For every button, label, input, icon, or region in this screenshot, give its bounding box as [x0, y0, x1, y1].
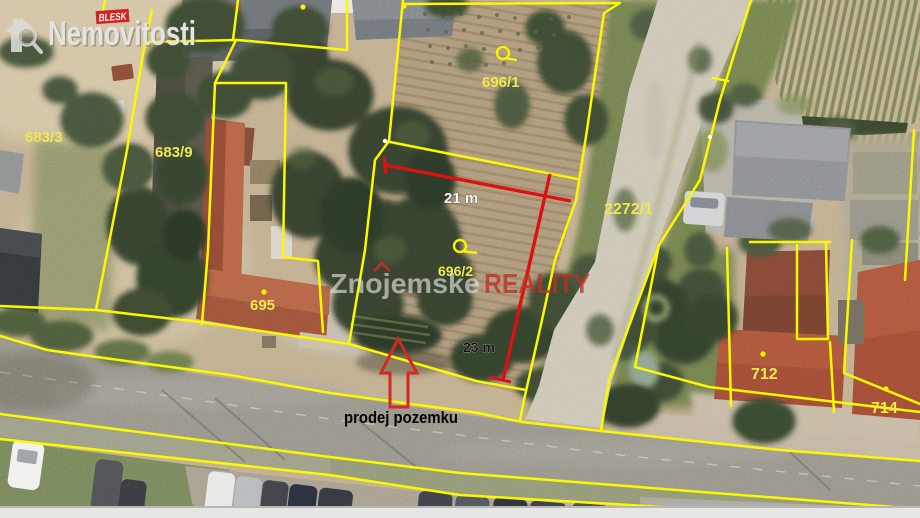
svg-text:23 m: 23 m: [463, 339, 495, 355]
svg-text:21 m: 21 m: [444, 190, 478, 207]
svg-text:REALITY: REALITY: [484, 268, 590, 299]
svg-text:695: 695: [250, 297, 275, 314]
svg-text:prodej pozemku: prodej pozemku: [344, 408, 458, 427]
svg-text:696/1: 696/1: [482, 74, 520, 91]
svg-text:714: 714: [871, 400, 898, 417]
svg-text:712: 712: [751, 366, 778, 383]
svg-text:BLESK: BLESK: [98, 10, 128, 24]
svg-text:Znojemske: Znojemske: [330, 268, 480, 299]
svg-text:2272/1: 2272/1: [604, 201, 653, 218]
svg-text:683/9: 683/9: [155, 144, 193, 161]
svg-text:683/3: 683/3: [25, 129, 63, 146]
